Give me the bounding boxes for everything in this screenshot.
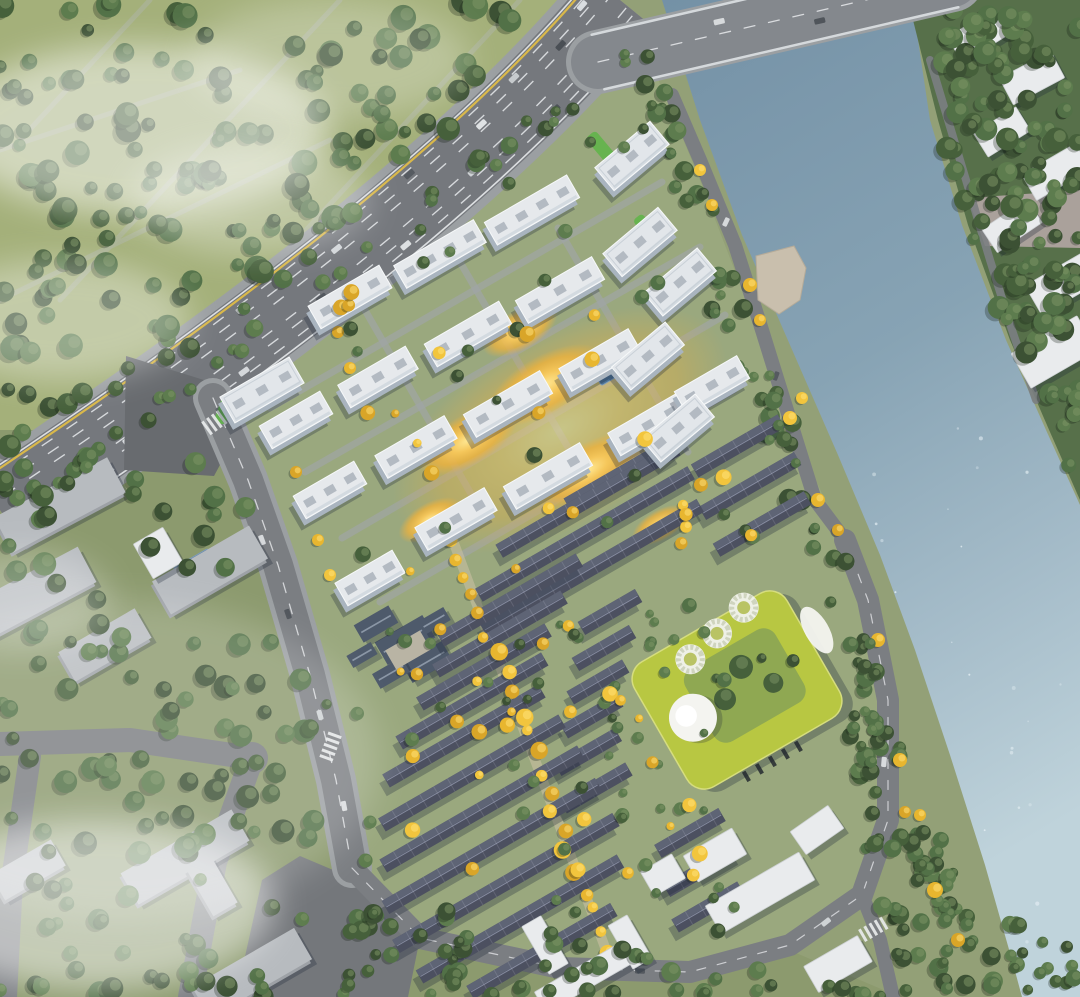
tree-highlight <box>891 841 900 850</box>
tree-highlight <box>898 755 905 762</box>
tree-highlight <box>945 139 956 150</box>
tree-highlight <box>508 178 515 185</box>
tree-highlight <box>1048 212 1056 220</box>
tree-highlight <box>506 698 510 702</box>
tree-highlight <box>1015 275 1026 286</box>
tree-highlight <box>768 371 773 376</box>
tree-highlight <box>904 807 910 813</box>
tree-highlight <box>720 291 725 296</box>
water-sparkle <box>880 539 883 542</box>
tree-highlight <box>606 517 612 523</box>
tree-highlight <box>1027 308 1036 317</box>
tree-highlight <box>814 524 819 529</box>
tree-highlight <box>994 59 1002 67</box>
tree-highlight <box>983 120 994 131</box>
tree-highlight <box>438 348 444 354</box>
tree-highlight <box>1054 130 1066 142</box>
tree-highlight <box>1055 976 1061 982</box>
tree-highlight <box>772 394 781 403</box>
tree-highlight <box>321 276 329 284</box>
tree-highlight <box>996 92 1006 102</box>
tree-highlight <box>168 391 174 397</box>
tree-highlight <box>515 565 520 570</box>
tree-highlight <box>295 467 301 473</box>
tree-highlight <box>863 661 870 668</box>
tree-highlight <box>7 437 19 449</box>
tree-highlight <box>212 488 223 499</box>
tree-highlight <box>216 358 222 364</box>
tree-highlight <box>419 930 426 937</box>
tree-highlight <box>1013 305 1021 313</box>
tree-highlight <box>675 984 683 992</box>
tree-highlight <box>260 982 267 989</box>
tree-highlight <box>1052 263 1061 272</box>
tree-highlight <box>1014 187 1022 195</box>
tree-highlight <box>1024 344 1035 355</box>
tree-highlight <box>916 949 924 957</box>
tree-highlight <box>526 696 531 701</box>
tree-highlight <box>471 863 478 870</box>
tree-highlight <box>885 727 892 734</box>
tree-highlight <box>837 525 843 531</box>
tree-highlight <box>703 807 707 811</box>
fog-cloud <box>130 145 370 255</box>
tree-highlight <box>702 189 708 195</box>
tree-highlight <box>656 277 663 284</box>
tree-highlight <box>756 986 762 992</box>
water-sparkle <box>984 829 986 831</box>
tree-highlight <box>945 29 954 38</box>
tree-highlight <box>703 988 709 994</box>
tree-highlight <box>411 734 418 741</box>
tree-highlight <box>375 950 380 955</box>
tree-highlight <box>372 910 377 915</box>
tree-highlight <box>411 824 419 832</box>
tree-highlight <box>400 668 404 672</box>
tree-highlight <box>741 301 751 311</box>
tree-highlight <box>972 234 978 240</box>
tree-highlight <box>816 495 823 502</box>
tree-highlight <box>547 504 553 510</box>
tree-highlight <box>965 911 973 919</box>
tree-highlight <box>369 817 376 824</box>
tree-highlight <box>1051 392 1058 399</box>
tree-highlight <box>317 535 323 541</box>
tree-highlight <box>445 904 454 913</box>
tree-highlight <box>389 628 393 632</box>
tree-highlight <box>698 847 706 855</box>
tree-highlight <box>1005 314 1011 320</box>
tree-highlight <box>638 715 642 719</box>
tree-highlight <box>620 943 629 952</box>
tree-highlight <box>733 903 738 908</box>
tree-highlight <box>770 980 776 986</box>
tree-highlight <box>439 625 445 631</box>
tree-highlight <box>727 320 734 327</box>
tree-highlight <box>643 77 652 86</box>
tree-highlight <box>185 561 194 570</box>
tree-highlight <box>642 125 647 130</box>
tree-highlight <box>1010 951 1016 957</box>
tree-highlight <box>576 864 583 871</box>
tree-highlight <box>366 243 372 249</box>
tree-highlight <box>869 639 875 645</box>
water-sparkle <box>894 591 896 593</box>
tree-highlight <box>634 470 640 476</box>
tree-highlight <box>147 414 155 422</box>
tree-highlight <box>148 539 158 549</box>
tree-highlight <box>646 954 652 960</box>
tree-highlight <box>356 347 361 352</box>
tree-highlight <box>1005 164 1015 174</box>
tree-highlight <box>551 788 558 795</box>
tree-highlight <box>627 868 633 874</box>
water-sparkle <box>1028 803 1031 806</box>
tree-highlight <box>1017 221 1025 229</box>
tree-highlight <box>841 982 850 991</box>
tree-highlight <box>544 275 550 281</box>
tree-highlight <box>593 310 599 316</box>
tree-highlight <box>614 682 619 687</box>
water-sparkle <box>1010 751 1014 755</box>
tree-highlight <box>583 814 590 821</box>
tree-highlight <box>572 104 579 111</box>
tree-highlight <box>1067 282 1073 288</box>
tree-highlight <box>182 6 195 19</box>
tree-highlight <box>16 492 24 500</box>
tree-highlight <box>404 636 411 643</box>
tree-highlight <box>341 134 351 144</box>
tree-highlight <box>619 696 624 701</box>
tree-highlight <box>649 642 654 647</box>
tree-highlight <box>578 939 586 947</box>
tree-highlight <box>364 855 371 862</box>
tree-highlight <box>663 86 672 95</box>
tree-highlight <box>132 488 140 496</box>
tree-highlight <box>723 510 729 516</box>
tree-highlight <box>571 507 577 513</box>
tree-highlight <box>429 639 435 645</box>
tree-highlight <box>682 501 687 506</box>
tree-highlight <box>1031 170 1040 179</box>
tree-highlight <box>731 272 739 280</box>
tree-highlight <box>942 958 947 963</box>
tree-highlight <box>85 462 91 468</box>
tree-highlight <box>519 640 524 645</box>
tree-highlight <box>467 346 473 352</box>
tree-highlight <box>404 127 410 133</box>
tree-highlight <box>919 915 928 924</box>
tree-highlight <box>756 963 765 972</box>
water-sparkle <box>875 523 878 526</box>
tree-highlight <box>449 248 454 253</box>
tree-highlight <box>440 703 445 708</box>
tree-highlight <box>1063 104 1071 112</box>
tree-highlight <box>259 262 271 274</box>
water-sparkle <box>1011 747 1014 750</box>
tree-highlight <box>1019 43 1030 54</box>
tree-highlight <box>574 908 580 914</box>
tree-highlight <box>953 163 963 173</box>
tree-highlight <box>967 939 974 946</box>
tree-highlight <box>965 919 972 926</box>
tree-highlight <box>792 656 798 662</box>
tree-highlight <box>1038 238 1044 244</box>
tree-highlight <box>861 988 869 996</box>
tree-highlight <box>801 393 807 399</box>
tree-highlight <box>608 688 616 696</box>
tree-highlight <box>1069 179 1077 187</box>
tree-highlight <box>454 555 460 561</box>
tree-highlight <box>256 970 264 978</box>
tree-highlight <box>564 225 571 232</box>
tree-highlight <box>722 471 730 479</box>
tree-highlight <box>637 733 643 739</box>
tree-highlight <box>812 542 820 550</box>
tree-highlight <box>750 530 756 536</box>
tree-highlight <box>1046 963 1052 969</box>
tree-highlight <box>213 509 220 516</box>
tree-highlight <box>586 963 592 969</box>
tree-highlight <box>70 239 78 247</box>
tree-highlight <box>542 639 548 645</box>
tree-highlight <box>26 387 35 396</box>
tree-highlight <box>478 772 482 776</box>
tree-highlight <box>361 548 369 556</box>
tree-highlight <box>7 384 14 391</box>
tree-highlight <box>204 974 214 984</box>
tree-highlight <box>718 883 723 888</box>
tree-highlight <box>1038 158 1045 165</box>
tree-highlight <box>409 568 413 572</box>
tree-highlight <box>349 925 357 933</box>
tree-highlight <box>939 834 947 842</box>
tree-highlight <box>189 384 195 390</box>
tree-highlight <box>115 427 122 434</box>
tree-highlight <box>523 711 532 720</box>
tree-highlight <box>548 986 555 993</box>
tree-highlight <box>348 970 354 976</box>
aerial-rendering-canvas <box>0 0 1080 997</box>
tree-highlight <box>555 107 560 112</box>
tree-highlight <box>919 860 925 866</box>
tree-highlight <box>899 830 908 839</box>
tree-highlight <box>416 669 422 675</box>
tree-highlight <box>1005 130 1016 141</box>
tree-highlight <box>611 715 615 719</box>
tree-highlight <box>589 138 595 144</box>
tree-highlight <box>894 904 901 911</box>
tree-highlight <box>597 958 607 968</box>
tree-highlight <box>873 669 879 675</box>
tree-highlight <box>419 225 425 231</box>
tree-highlight <box>1022 263 1028 269</box>
tree-highlight <box>971 15 982 26</box>
tree-highlight <box>643 433 651 441</box>
tree-highlight <box>795 459 800 464</box>
tree-highlight <box>675 123 684 132</box>
tree-highlight <box>416 440 420 444</box>
tree-highlight <box>513 761 519 767</box>
tree-highlight <box>389 920 397 928</box>
tree-highlight <box>476 608 482 614</box>
tree-highlight <box>926 863 933 870</box>
tree-highlight <box>1009 197 1021 209</box>
tree-highlight <box>1033 123 1040 130</box>
tree-highlight <box>660 805 665 810</box>
water-sparkle <box>947 508 949 510</box>
tree-highlight <box>533 449 541 457</box>
tree-highlight <box>910 835 919 844</box>
tree-highlight <box>243 499 253 509</box>
tree-highlight <box>586 890 592 896</box>
water-sparkle <box>951 642 953 644</box>
tree-highlight <box>663 668 669 674</box>
tree-highlight <box>411 751 418 758</box>
tree-highlight <box>956 935 963 942</box>
tree-highlight <box>329 570 335 576</box>
tree-highlight <box>580 783 586 789</box>
tree-highlight <box>1071 961 1077 967</box>
tree-highlight <box>685 509 692 516</box>
tree-highlight <box>549 928 556 935</box>
tree-highlight <box>964 977 974 987</box>
tree-highlight <box>933 884 941 892</box>
tree-highlight <box>470 590 476 596</box>
tree-highlight <box>80 385 91 396</box>
tree-highlight <box>585 984 593 992</box>
tree-highlight <box>853 711 859 717</box>
tree-highlight <box>644 860 651 867</box>
tree-highlight <box>511 686 518 693</box>
tree-highlight <box>384 120 395 131</box>
tree-highlight <box>860 742 865 747</box>
tree-highlight <box>1025 92 1035 102</box>
tree-highlight <box>389 949 397 957</box>
tree-highlight <box>223 560 232 569</box>
tree-highlight <box>946 984 952 990</box>
tree-highlight <box>669 964 679 974</box>
tree-highlight <box>916 875 923 882</box>
tree-highlight <box>753 373 758 378</box>
tree-highlight <box>685 195 692 202</box>
tree-highlight <box>86 25 92 31</box>
tree-highlight <box>511 708 515 712</box>
tree-highlight <box>363 131 373 141</box>
tree-highlight <box>955 103 966 114</box>
tree-highlight <box>349 363 355 369</box>
tree-highlight <box>777 421 782 426</box>
car-group <box>881 757 887 767</box>
water-sparkle <box>1027 720 1029 722</box>
tree-highlight <box>600 927 605 932</box>
tree-highlight <box>444 523 450 529</box>
water-sparkle <box>960 546 962 548</box>
tree-highlight <box>989 949 998 958</box>
tree-highlight <box>782 433 790 441</box>
tree-highlight <box>852 723 859 730</box>
tree-highlight <box>544 961 550 967</box>
tree-highlight <box>22 460 31 469</box>
tree-highlight <box>1039 968 1045 974</box>
tree-highlight <box>946 946 952 952</box>
tree-highlight <box>526 726 531 731</box>
tree-highlight <box>1006 8 1017 19</box>
tree-highlight <box>646 51 653 58</box>
tree-highlight <box>944 915 951 922</box>
tree-highlight <box>526 328 534 336</box>
tree-highlight <box>699 165 705 171</box>
tree-highlight <box>682 163 692 173</box>
tree-highlight <box>570 969 578 977</box>
tree-highlight <box>44 508 54 518</box>
tree-highlight <box>422 257 428 263</box>
tree-highlight <box>567 621 573 627</box>
tree-highlight <box>553 118 558 123</box>
tree-highlight <box>714 309 719 314</box>
tree-highlight <box>1017 919 1025 927</box>
tree-highlight <box>366 407 373 414</box>
tree-highlight <box>830 598 836 604</box>
tree-highlight <box>339 268 346 275</box>
tree-highlight <box>921 827 929 835</box>
tree-highlight <box>870 712 878 720</box>
tree-highlight <box>935 858 943 866</box>
tree-highlight <box>987 176 998 187</box>
tree-highlight <box>462 573 467 578</box>
tree-highlight <box>537 744 546 753</box>
tree-highlight <box>1019 142 1025 148</box>
water-sparkle <box>957 427 959 429</box>
tree-highlight <box>703 627 709 633</box>
tree-highlight <box>670 149 675 154</box>
tree-highlight <box>202 527 213 538</box>
tree-highlight <box>905 986 911 992</box>
tree-highlight <box>281 272 290 281</box>
tree-highlight <box>699 479 706 486</box>
tree-highlight <box>540 771 546 777</box>
tree-highlight <box>649 611 653 615</box>
tree-highlight <box>97 443 104 450</box>
tree-highlight <box>688 800 695 807</box>
tree-highlight <box>919 810 925 816</box>
tree-highlight <box>105 232 113 240</box>
tree-highlight <box>1021 948 1027 954</box>
tree-highlight <box>555 896 560 901</box>
tree-highlight <box>444 945 452 953</box>
tree-highlight <box>456 371 462 377</box>
tree-highlight <box>870 757 876 763</box>
tree-highlight <box>506 719 514 727</box>
water-sparkle <box>1012 686 1016 690</box>
tree-highlight <box>253 321 262 330</box>
tree-highlight <box>476 151 485 160</box>
tree-highlight <box>452 978 459 985</box>
tree-highlight <box>367 966 373 972</box>
tree-highlight <box>569 707 575 713</box>
tree-highlight <box>990 978 999 987</box>
tree-highlight <box>398 147 408 157</box>
tree-highlight <box>188 340 198 350</box>
tree-highlight <box>711 200 717 206</box>
tree-highlight <box>236 260 242 266</box>
tree-highlight <box>161 504 170 513</box>
tree-highlight <box>968 120 976 128</box>
tree-highlight <box>473 67 484 78</box>
tree-highlight <box>41 251 50 260</box>
tree-highlight <box>942 975 950 983</box>
water-sparkle <box>1059 683 1061 685</box>
